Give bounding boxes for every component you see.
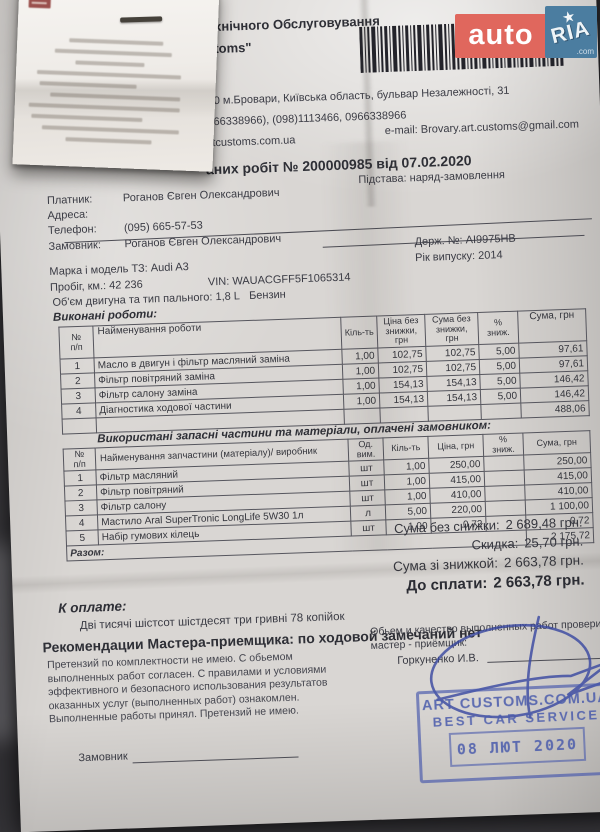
stapled-receipt [13, 0, 220, 172]
parts-header: Ціна, грн [428, 434, 484, 458]
payer-label: Платник: [47, 193, 93, 207]
total-due-line: До сплати:2 663,78 грн. [320, 571, 584, 597]
plate-label: Держ. №: [414, 235, 462, 249]
parts-header: Од. вим. [348, 438, 384, 462]
make-line: Марка і модель ТЗ: Audi A3 [49, 261, 189, 278]
year-line: Рік випуску: 2014 [415, 249, 503, 264]
stamp-date: 08 ЛЮТ 2020 [451, 729, 584, 765]
parts-header: % зниж. [483, 433, 524, 457]
works-table: № п/п Найменування роботи Кіль-ть Ціна б… [58, 308, 589, 435]
payment-amount-words: Дві тисячі шістсот шістдесят три гривні … [80, 611, 345, 632]
mileage-line: Пробіг, км.: 42 236 [50, 279, 143, 294]
company-email: e-mail: Brovary.art.customs@gmail.com [385, 118, 580, 137]
engine-label: Об'єм двигуна та тип пального: [52, 291, 212, 309]
mileage-value: 42 236 [109, 279, 143, 292]
works-total-value: 488,06 [521, 401, 589, 418]
vin-label: VIN: [208, 276, 230, 289]
plate-line: Держ. №: AI9975HB [414, 233, 516, 249]
vin-value: WAUACGFF5F1065314 [232, 271, 351, 287]
payer-value: Роганов Євген Олександрович [123, 187, 280, 204]
year-label: Рік випуску: [415, 250, 475, 264]
address-label: Адреса: [47, 209, 88, 222]
works-header: Сума, грн [518, 309, 587, 344]
engine-value: 1,8 L [215, 290, 240, 303]
customer-value: Роганов Євген Олександрович [124, 233, 281, 250]
make-label: Марка і модель ТЗ: [49, 263, 148, 278]
parts-header: Сума, грн [523, 431, 591, 456]
vin-line: VIN: WAUACGFF5F1065314 [208, 271, 351, 288]
customer-label: Замовник: [48, 239, 101, 253]
phone-label: Телефон: [48, 223, 97, 237]
autoria-watermark: auto ★ RIA .com [455, 6, 597, 58]
ria-badge: ★ RIA .com [545, 6, 597, 58]
receipt-red-mark [29, 0, 52, 8]
master-role-line: мастер - приёмщик: [370, 637, 467, 652]
company-address: са: 07400 м.Бровари, Київська область, б… [171, 85, 509, 109]
master-name: Горкуненко И.В. [397, 652, 479, 667]
year-value: 2014 [478, 249, 503, 262]
works-header: Ціна без знижки, грн [377, 314, 426, 348]
basis-line: Підстава: наряд-замовлення [358, 169, 505, 186]
works-header: % зниж. [478, 311, 519, 345]
disclaimer-block: Претензий по комплектности не имею. С об… [47, 648, 384, 727]
customer-sign-line [133, 757, 299, 764]
plate-value: AI9975HB [465, 233, 516, 247]
auto-badge: auto [455, 14, 547, 58]
works-header: Кіль-ть [341, 316, 378, 349]
works-section-title: Виконані роботи: [53, 308, 157, 324]
master-check-line: Обьем и качество выполненных работ прове… [370, 618, 600, 638]
parts-header: Кіль-ть [383, 436, 429, 460]
mileage-label: Пробіг, км.: [50, 280, 107, 294]
payment-label: К оплате: [58, 598, 127, 615]
parts-header: № п/п [63, 448, 96, 472]
company-stamp: ART CUSTOMS.COM.UA BEST CAR SERVICE 08 Л… [416, 682, 600, 783]
staple [120, 16, 162, 22]
works-header: № п/п [59, 326, 94, 359]
ria-dot-com: .com [577, 47, 594, 56]
totals-block: Сума без снижки:2 689,48 грн. Скидка:25,… [318, 515, 585, 602]
signature-line [487, 658, 600, 663]
customer-sign-label: Замовник [78, 751, 128, 765]
receipt-print-lines [27, 37, 203, 154]
ria-logo-text: RIA [549, 17, 593, 50]
phone-value: (095) 665-57-53 [124, 220, 203, 235]
works-header: Сума без знижки, грн [425, 313, 479, 347]
make-value: Audi A3 [151, 261, 189, 274]
stamp-date-box: 08 ЛЮТ 2020 [449, 727, 586, 767]
fuel-value: Бензин [249, 289, 286, 302]
